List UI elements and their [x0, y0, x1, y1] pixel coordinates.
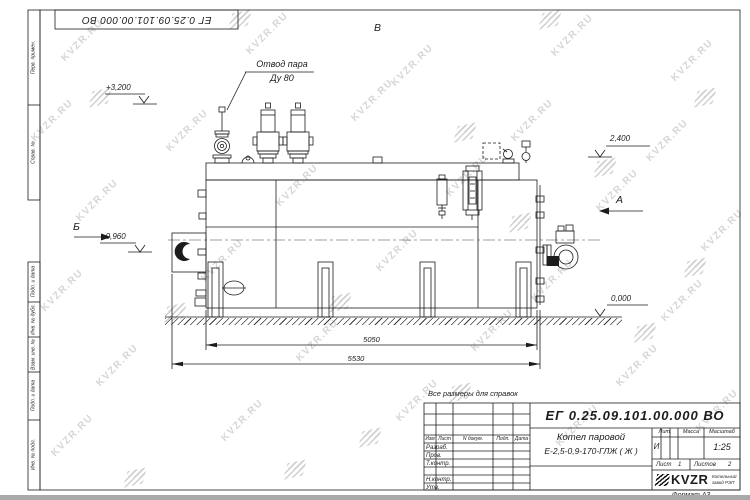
col-header-podp: Подп.: [493, 437, 513, 442]
side-col-vzam-inv: Взам. инв. №: [32, 334, 37, 374]
dimension-5050: 5050: [206, 336, 537, 344]
row-tkontr: Т.контр.: [426, 461, 450, 467]
side-col-perv-primen: Перв. примен.: [32, 12, 37, 102]
elevation-label-3200: +3,200: [106, 84, 131, 92]
steam-outlet-label-line2: Ду 80: [247, 74, 317, 83]
side-col-inv-dubl: Инв. № дубл.: [32, 299, 37, 339]
col-header-data: Дата: [513, 437, 530, 442]
dimension-5530: 5530: [172, 355, 540, 363]
safety-valve-2: [283, 103, 313, 163]
kvzr-logo-icon: [655, 474, 671, 486]
row-utv: Утв.: [426, 485, 440, 491]
view-label-v: В: [374, 23, 381, 34]
view-a-arrow-icon: [599, 208, 609, 215]
scale-label: Масштаб: [704, 430, 740, 436]
col-header-docum: N докум.: [453, 437, 493, 442]
product-name-line2: Е-2,5-0,9-170-ГЛЖ ( Ж ): [530, 447, 652, 456]
view-arrows: [74, 208, 643, 241]
top-stamp-designation: ЕГ 0.25.09.101.00.000 ВО: [55, 10, 238, 29]
elevation-label-2400: 2,400: [610, 135, 630, 143]
view-label-b: Б: [73, 222, 80, 233]
dome-fitting: [242, 156, 254, 163]
mass-label: Масса: [678, 430, 704, 436]
elevation-marks: [100, 94, 650, 316]
scale-value: 1:25: [704, 443, 740, 452]
row-prov: Пров.: [426, 453, 442, 459]
elevation-label-0960: +0,960: [101, 233, 126, 241]
burner: [172, 190, 246, 306]
feed-pump: [543, 225, 578, 269]
col-header-list: Лист: [436, 437, 453, 442]
side-col-podp-data-1: Подп. и дата: [32, 262, 37, 302]
elevation-label-0000: 0,000: [611, 295, 631, 303]
sheet-value: 1: [678, 462, 681, 468]
title-designation: ЕГ 0.25.09.101.00.000 ВО: [530, 409, 740, 422]
company-name-line1: Котельный: [712, 475, 736, 480]
scan-edge: [0, 495, 750, 500]
sheets-label: Листов: [694, 462, 716, 468]
sheets-value: 2: [728, 462, 731, 468]
steam-outlet-label-line1: Отвод пара: [247, 60, 317, 69]
water-level-gauges: [437, 166, 482, 220]
row-razrab: Разраб.: [426, 445, 448, 451]
lit-label: Лит.: [652, 430, 678, 436]
support-legs: [208, 262, 531, 317]
side-col-sprav: Справ. №: [32, 107, 37, 197]
side-col-podp-data-2: Подп. и дата: [32, 376, 37, 416]
row-nkontr: Н.контр.: [426, 477, 451, 483]
lit-value: И: [652, 443, 661, 451]
company-name-line2: завод РЭП: [712, 481, 734, 486]
col-header-izm: Изм: [424, 437, 436, 442]
side-col-inv-podl: Инв. № подл.: [32, 430, 37, 480]
ground-hatch: [165, 318, 622, 325]
reference-note: Все размеры для справок: [428, 390, 518, 398]
sheet-label: Лист: [656, 462, 671, 468]
top-right-fittings: [373, 141, 530, 163]
burner-swirl-icon: [175, 242, 190, 261]
view-label-a: А: [616, 195, 623, 206]
product-name-line1: Котел паровой: [530, 433, 652, 443]
drawing-sheet: KVZR.RU KVZR.RU KVZR.RU KVZR.RU KVZR.RU …: [0, 0, 750, 500]
boiler-body: [165, 163, 622, 317]
steam-outlet-valve: [213, 72, 314, 163]
safety-valve-1: [253, 103, 283, 163]
kvzr-logo-text: KVZR: [671, 473, 708, 486]
